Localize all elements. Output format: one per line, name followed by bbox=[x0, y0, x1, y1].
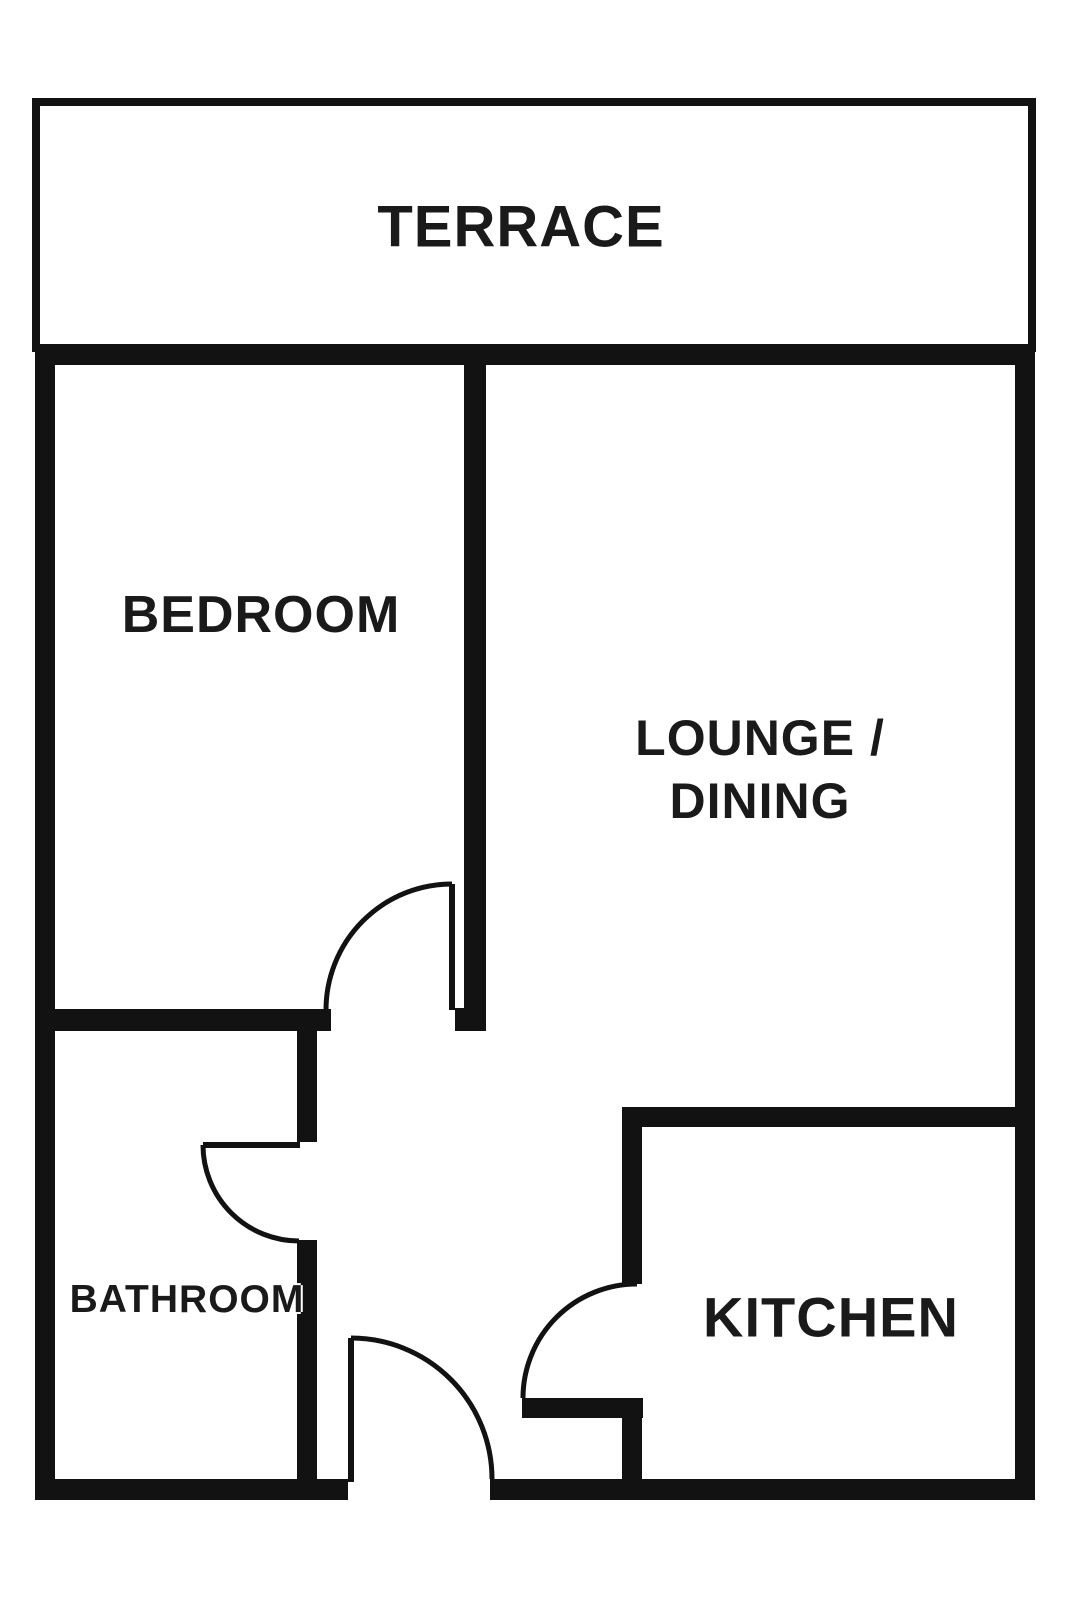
room-label-lounge-line1: LOUNGE / bbox=[635, 707, 885, 770]
floor-plan: TERRACE BEDROOM LOUNGE / DINING BATHROOM… bbox=[0, 0, 1067, 1600]
bedroom-bottom-wall bbox=[55, 1009, 331, 1031]
bedroom-door-swing-arc bbox=[326, 884, 452, 1010]
kitchen-door-swing-arc bbox=[523, 1284, 637, 1398]
room-label-lounge-line2: DINING bbox=[635, 770, 885, 833]
bathroom-wall-upper bbox=[297, 1030, 317, 1142]
outer-wall-left bbox=[35, 344, 55, 1500]
outer-wall-bottom-right bbox=[490, 1479, 1035, 1500]
entry-door-leaf bbox=[348, 1338, 354, 1482]
kitchen-top-wall bbox=[622, 1107, 1015, 1127]
bedroom-door-leaf bbox=[449, 884, 455, 1010]
kitchen-door-leaf bbox=[522, 1398, 643, 1418]
outer-wall-bottom-left bbox=[35, 1479, 348, 1500]
kitchen-left-wall-lower bbox=[622, 1418, 642, 1480]
entry-door-swing-arc bbox=[351, 1338, 492, 1479]
room-label-kitchen: KITCHEN bbox=[703, 1285, 959, 1350]
room-label-terrace: TERRACE bbox=[377, 194, 664, 261]
bedroom-lounge-wall bbox=[464, 363, 486, 1030]
bedroom-lounge-wall-foot bbox=[455, 1008, 486, 1031]
room-label-bedroom: BEDROOM bbox=[122, 585, 401, 645]
room-label-lounge-dining: LOUNGE / DINING bbox=[635, 707, 885, 833]
kitchen-left-wall-upper bbox=[622, 1127, 642, 1284]
bathroom-door-leaf bbox=[203, 1142, 300, 1148]
bathroom-wall-lower bbox=[297, 1240, 317, 1480]
outer-wall-top bbox=[35, 344, 1035, 365]
bathroom-door-swing-arc bbox=[203, 1145, 299, 1241]
outer-wall-right bbox=[1015, 344, 1035, 1500]
room-label-bathroom: BATHROOM bbox=[70, 1278, 305, 1322]
